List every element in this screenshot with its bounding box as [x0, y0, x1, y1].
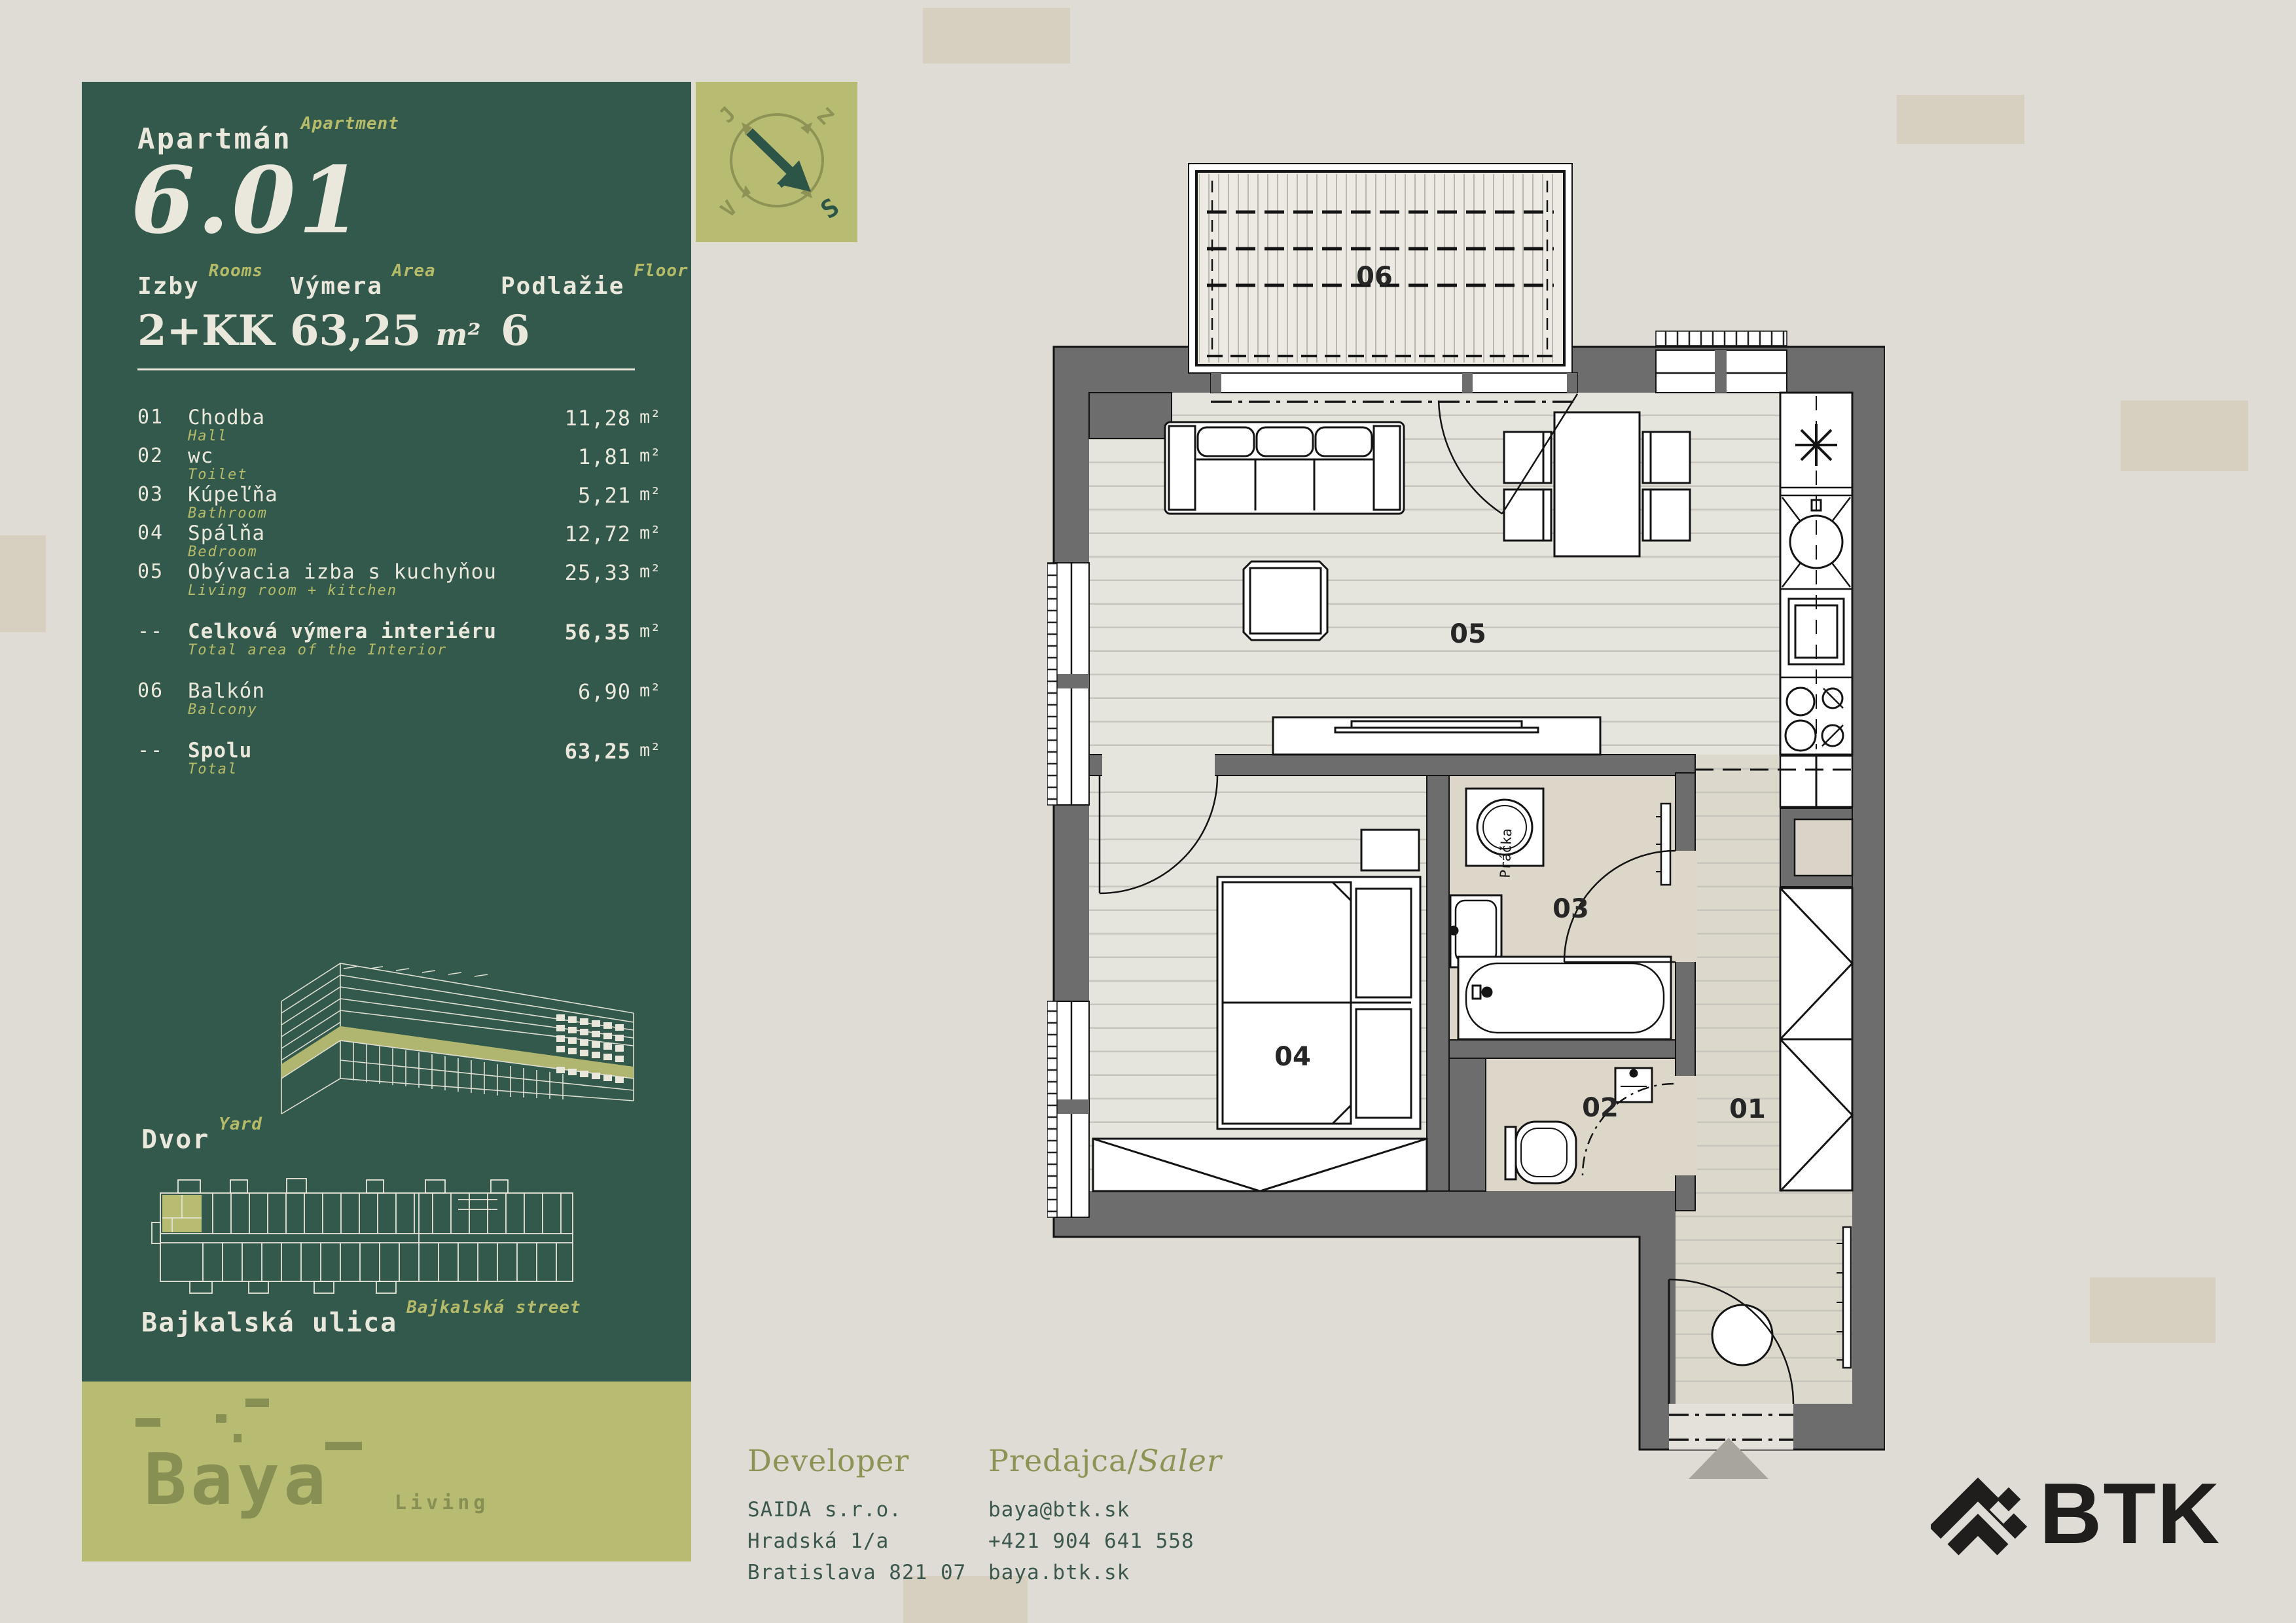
spec-rooms: IzbyRooms 2+KK [137, 270, 274, 355]
window-bedroom-left [1047, 1001, 1089, 1217]
compass-nw: J [714, 101, 740, 128]
deco-block [1897, 95, 2024, 144]
area-row-total: --Spolu Total63,25m² [82, 739, 691, 777]
developer-heading: Developer [747, 1443, 966, 1478]
developer-street: Hradská 1/a [747, 1528, 966, 1554]
deco-block [2121, 401, 2248, 471]
area-row: 04Spálňa Bedroom12,72m² [82, 522, 691, 560]
area-row-total-interior: --Celková výmera interiéru Total area of… [82, 620, 691, 658]
seller-phone: +421 904 641 558 [988, 1528, 1222, 1554]
sofa [1165, 422, 1404, 514]
bed [1217, 877, 1420, 1129]
room-label-living: 05 [1450, 619, 1486, 649]
hall-cabinet [1780, 756, 1852, 807]
brand-suffix: Living [395, 1491, 489, 1514]
compass-sw: V [715, 196, 742, 222]
area-row: 06Balkón Balcony6,90m² [82, 679, 691, 717]
hall-niche [1780, 808, 1852, 887]
partner-logo-text: BTK [2039, 1471, 2221, 1556]
nightstand [1361, 830, 1419, 870]
spec-floor: PodlažieFloor 6 [501, 270, 689, 355]
brand-name: Baya [144, 1439, 330, 1521]
apartment-number: 6.01 [131, 147, 365, 255]
washer-label: Práčka [1498, 828, 1515, 878]
room-label-bedroom: 04 [1274, 1042, 1311, 1072]
deco-block [2090, 1277, 2215, 1343]
wardrobe-bedroom [1093, 1139, 1427, 1191]
divider [137, 368, 635, 370]
hall-stool [1712, 1305, 1772, 1365]
deco-block [923, 8, 1070, 63]
seller-web: baya.btk.sk [988, 1560, 1222, 1586]
site-plan [151, 1160, 596, 1314]
seller-email: baya@btk.sk [988, 1497, 1222, 1523]
deco-block [0, 535, 46, 632]
room-label-balcony: 06 [1356, 262, 1393, 292]
area-row: 01Chodba Hall11,28m² [82, 406, 691, 444]
compass: J Z V S [696, 82, 857, 242]
spec-area: VýmeraArea 63,25 m² [290, 270, 481, 355]
dining-table [1554, 412, 1640, 556]
compass-se: S [816, 192, 844, 224]
hall-wardrobe [1780, 888, 1852, 1191]
bathtub [1458, 957, 1671, 1039]
floor-plan: Práčka [1047, 157, 1885, 1492]
info-panel: ApartmánApartment 6.01 IzbyRooms 2+KK Vý… [82, 82, 691, 1382]
yard-label: DvorYard [141, 1124, 262, 1154]
compass-arrow-icon [749, 132, 811, 192]
room-label-hall: 01 [1729, 1094, 1766, 1124]
brand-band: Baya Living [82, 1382, 691, 1561]
developer-block: Developer SAIDA s.r.o. Hradská 1/a Brati… [747, 1443, 966, 1586]
area-row: 05Obývacia izba s kuchyňou Living room +… [82, 560, 691, 598]
developer-name: SAIDA s.r.o. [747, 1497, 966, 1523]
building-illustration [275, 936, 641, 1132]
tv-board [1273, 717, 1600, 755]
street-label: Bajkalská ulicaBajkalská street [141, 1307, 581, 1338]
coffee-table [1244, 562, 1327, 640]
wc-sink [1615, 1068, 1652, 1102]
area-row: 03Kúpeľňa Bathroom5,21m² [82, 483, 691, 521]
room-label-bathroom: 03 [1552, 894, 1589, 924]
apartment-sheet: { "colors": { "green":"#32594b", "olive"… [0, 0, 2296, 1623]
kitchen-units [1780, 393, 1852, 755]
compass-ne: Z [812, 103, 838, 129]
roof-icon [1931, 1471, 2029, 1556]
partner-logo: BTK [1931, 1471, 2221, 1556]
room-label-wc: 02 [1582, 1093, 1619, 1123]
window-top [1656, 331, 1787, 393]
developer-city: Bratislava 821 07 [747, 1560, 966, 1586]
window-living-left [1047, 563, 1089, 805]
area-row: 02wc Toilet1,81m² [82, 444, 691, 482]
apartment-label-en: Apartment [301, 114, 399, 134]
toilet [1505, 1122, 1576, 1183]
